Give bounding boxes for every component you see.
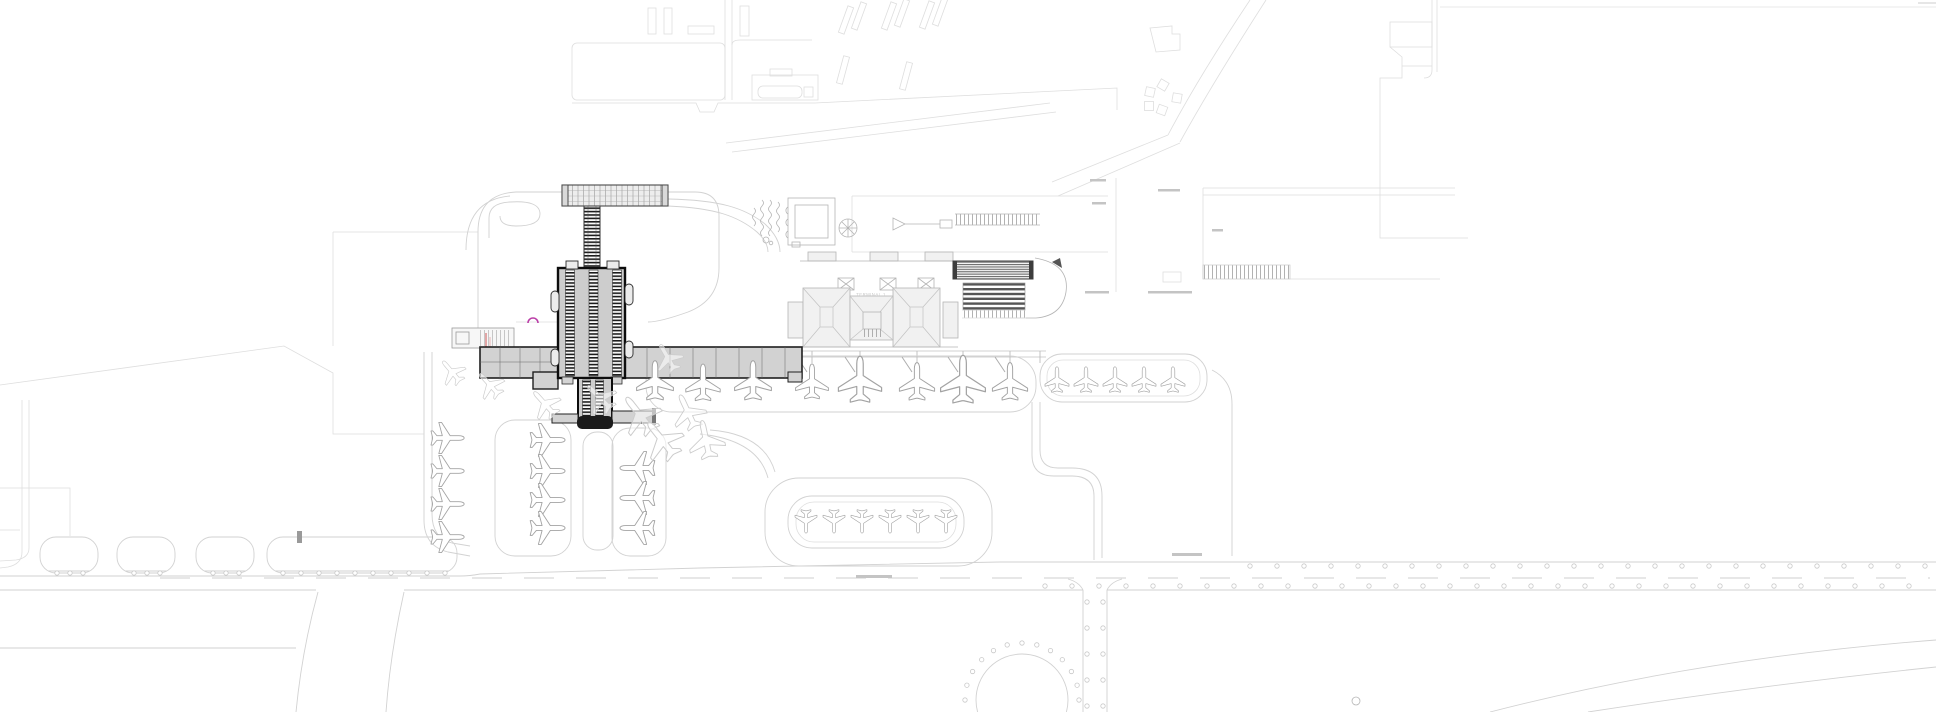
aircraft-symbol <box>851 510 873 533</box>
curved-road-outer <box>1168 0 1250 135</box>
aircraft-symbol <box>530 455 565 488</box>
service-road-north-edge <box>0 562 1936 576</box>
antenna-structure <box>893 218 952 230</box>
aircraft-symbol <box>899 363 934 400</box>
aircraft-symbol <box>620 512 655 545</box>
terminal-1-east-pavilion <box>893 288 940 347</box>
aircraft-symbol <box>935 510 957 533</box>
recirculation-ramp <box>489 202 540 238</box>
tiny-illegible-label <box>856 575 892 578</box>
terminal-1-label: TERMINAL 1 <box>856 292 886 297</box>
pod-strip <box>267 537 457 573</box>
terminal-1-canopies <box>800 252 958 290</box>
parking-deck-bar <box>562 185 668 206</box>
aircraft-symbol <box>431 488 464 519</box>
small-building <box>648 8 656 34</box>
south-commuter-row <box>795 510 957 533</box>
service-building-court <box>758 86 802 98</box>
northeast-parcel <box>1380 0 1936 238</box>
east-arm-end <box>788 372 802 382</box>
landscape-coils <box>753 200 780 245</box>
west-column-b <box>530 424 565 545</box>
small-building <box>664 8 672 34</box>
skylight-band <box>566 270 575 376</box>
aircraft-symbol <box>1045 367 1069 393</box>
south-roadways <box>0 553 1936 712</box>
aircraft-symbol <box>530 512 565 545</box>
tick-row <box>962 310 1026 318</box>
terminal-1-building: TERMINAL 1 <box>788 288 958 347</box>
aircraft-symbol <box>620 452 655 485</box>
access-road <box>725 0 732 100</box>
east-concourse-arm <box>625 347 802 378</box>
aircraft-symbol <box>433 353 470 390</box>
central-plant-building <box>786 198 835 247</box>
west-parcels <box>0 232 478 568</box>
loop-road-east <box>648 192 719 322</box>
pod <box>117 537 175 573</box>
upper-comb-structure <box>955 214 1040 225</box>
aircraft-symbol <box>431 422 464 453</box>
east-airside-link <box>1032 402 1102 560</box>
tiny-illegible-label <box>1172 553 1202 556</box>
terminal-1-west-wing <box>788 302 803 338</box>
parcel-edge <box>732 40 812 45</box>
west-arm-annex <box>533 372 558 389</box>
center-taxilane <box>583 432 613 550</box>
terminal-1-east-wing <box>943 302 958 338</box>
aircraft-symbol <box>823 510 845 533</box>
aircraft-symbol <box>620 482 655 515</box>
new-terminal-complex <box>452 185 802 429</box>
aircraft-symbol <box>795 510 817 533</box>
north-bridge <box>584 206 600 269</box>
southwest-pods <box>40 531 457 575</box>
parking-canopy <box>953 261 1033 279</box>
aircraft-symbol <box>530 484 565 517</box>
parcel-block <box>572 43 725 100</box>
parking-row <box>1203 265 1290 279</box>
service-building <box>752 75 818 100</box>
skylight-band <box>589 270 598 376</box>
center-comb <box>863 329 881 337</box>
loop-road-west <box>478 192 562 346</box>
striped-garage <box>963 283 1025 310</box>
roadside-lights <box>963 564 1927 708</box>
aircraft-symbol <box>941 355 986 403</box>
aircraft-symbol <box>1074 367 1098 393</box>
roundabout <box>976 654 1068 712</box>
service-building-wing <box>804 87 813 97</box>
aircraft-symbol <box>1103 367 1127 393</box>
north-parcels <box>572 0 1936 294</box>
aircraft-symbol <box>907 510 929 533</box>
west-parcel-boundary <box>0 346 424 434</box>
commuter-apron <box>788 496 964 548</box>
east-hardstand-apron <box>1040 354 1207 402</box>
aircraft-symbol <box>530 424 565 457</box>
midfield-lines <box>1116 178 1455 292</box>
pod <box>40 537 98 573</box>
angled-outbuildings <box>836 0 947 90</box>
airport-site-plan-canvas: TERMINAL 1 <box>0 0 1936 712</box>
far-east-link <box>1212 370 1232 556</box>
terminal-1-west-pavilion <box>803 288 850 347</box>
wind-rose <box>839 219 857 237</box>
terminal-1-area: TERMINAL 1 <box>640 196 1108 372</box>
aircraft-symbol <box>838 356 881 402</box>
southwest-ramp <box>296 592 404 712</box>
west-parcel-lines <box>0 488 70 536</box>
parking-structures <box>953 258 1066 318</box>
aircraft-symbol <box>431 455 464 486</box>
commuter-apron-outer <box>765 478 992 566</box>
pier-end-cap <box>577 416 613 429</box>
skylight-band <box>613 270 622 376</box>
southeast-curved-road <box>1490 640 1936 712</box>
curved-road-inner <box>1180 0 1266 142</box>
south-access-road <box>1068 579 1122 712</box>
west-column-a <box>431 422 464 552</box>
small-structure <box>1163 272 1181 282</box>
aircraft-symbol <box>1132 367 1156 393</box>
gate-marker <box>297 531 302 543</box>
pier-west-stub <box>552 414 578 423</box>
scattered-structures <box>1145 26 1183 116</box>
west-column-c <box>620 452 655 545</box>
small-building <box>740 6 749 36</box>
west-access-road <box>0 400 29 568</box>
aircraft-symbol <box>992 363 1027 400</box>
ramp-roads <box>726 103 1180 196</box>
pod <box>196 537 254 573</box>
utility-marker <box>1352 697 1360 705</box>
small-building <box>688 26 714 34</box>
east-hardstand-row <box>1045 367 1185 393</box>
aircraft-symbol <box>1161 367 1185 393</box>
aircraft-symbol <box>879 510 901 533</box>
aircraft-symbol <box>431 521 464 552</box>
